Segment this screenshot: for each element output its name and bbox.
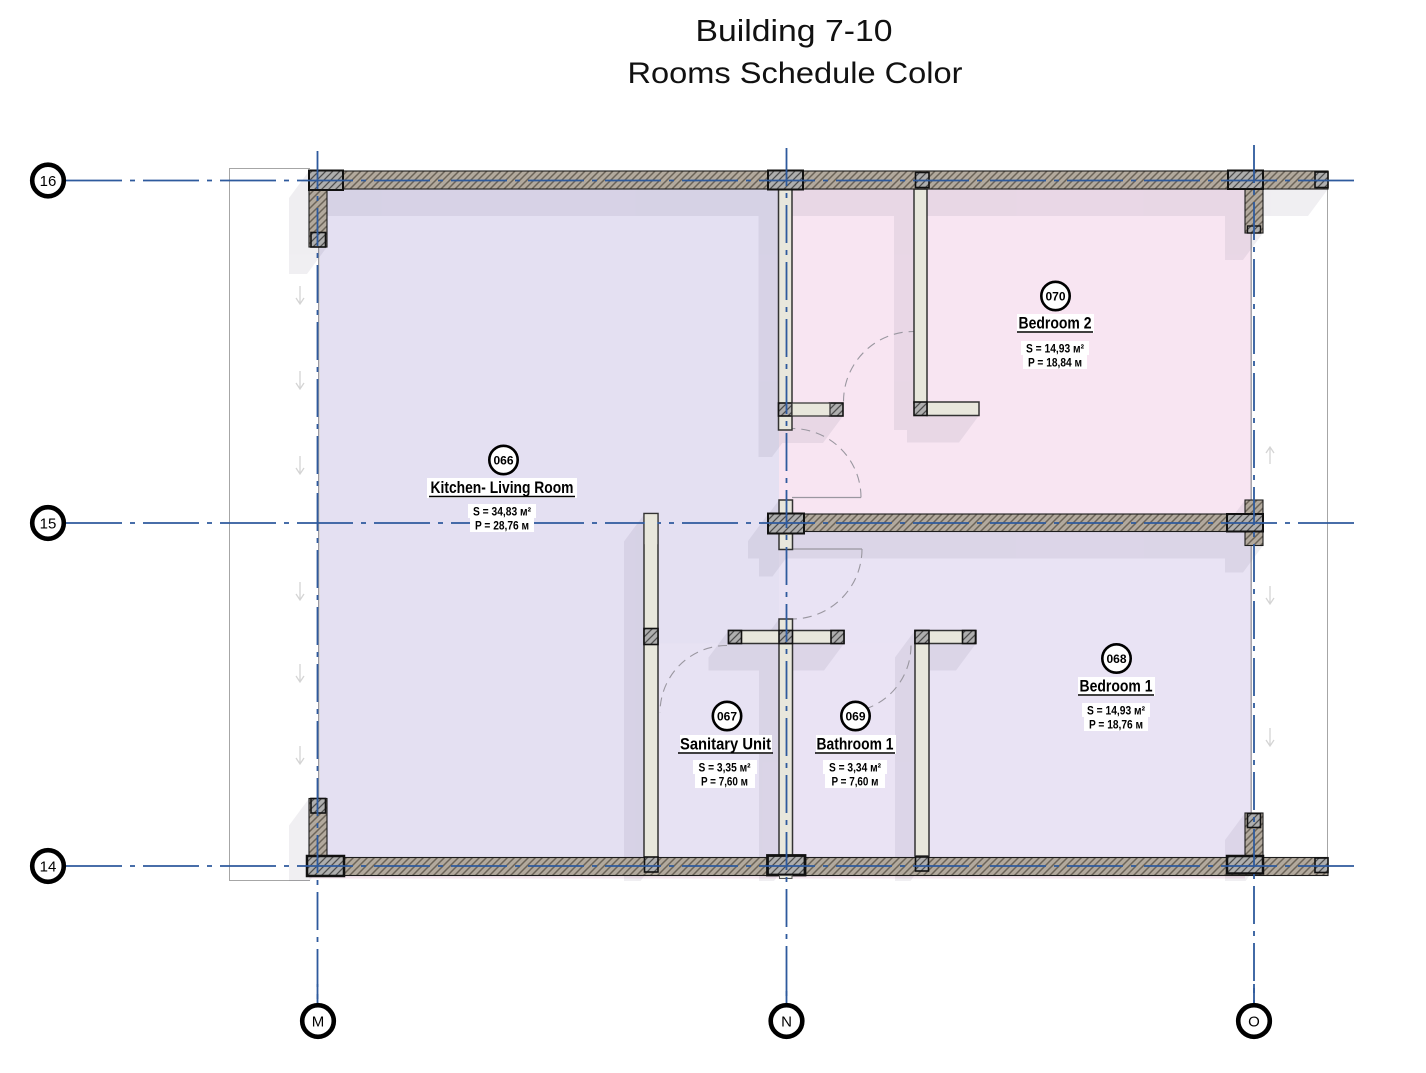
svg-text:N: N bbox=[781, 1014, 792, 1031]
svg-text:Building 7-10: Building 7-10 bbox=[696, 13, 893, 48]
svg-text:P = 18,76 м: P = 18,76 м bbox=[1089, 718, 1143, 732]
svg-text:070: 070 bbox=[1045, 290, 1065, 304]
svg-text:Bathroom 1: Bathroom 1 bbox=[817, 735, 894, 754]
svg-text:P = 7,60 м: P = 7,60 м bbox=[832, 775, 879, 789]
svg-text:Rooms Schedule Color: Rooms Schedule Color bbox=[628, 57, 963, 90]
svg-text:P = 28,76 м: P = 28,76 м bbox=[475, 519, 529, 533]
svg-text:Sanitary Unit: Sanitary Unit bbox=[680, 735, 771, 754]
svg-text:O: O bbox=[1248, 1014, 1260, 1031]
svg-text:14: 14 bbox=[40, 859, 57, 876]
svg-text:068: 068 bbox=[1106, 652, 1126, 666]
svg-text:067: 067 bbox=[717, 710, 737, 724]
svg-text:P = 7,60 м: P = 7,60 м bbox=[701, 775, 748, 789]
svg-text:Bedroom 1: Bedroom 1 bbox=[1080, 677, 1153, 696]
svg-text:069: 069 bbox=[845, 710, 865, 724]
svg-text:M: M bbox=[312, 1014, 325, 1031]
svg-text:S = 14,93 м²: S = 14,93 м² bbox=[1087, 704, 1145, 718]
svg-text:Kitchen- Living Room: Kitchen- Living Room bbox=[431, 478, 574, 497]
svg-text:16: 16 bbox=[40, 173, 57, 190]
svg-text:P = 18,84 м: P = 18,84 м bbox=[1028, 356, 1082, 370]
svg-text:066: 066 bbox=[493, 454, 513, 468]
svg-text:S = 3,34 м²: S = 3,34 м² bbox=[829, 761, 881, 775]
svg-text:15: 15 bbox=[40, 516, 57, 533]
svg-text:S = 3,35 м²: S = 3,35 м² bbox=[699, 761, 751, 775]
svg-text:Bedroom 2: Bedroom 2 bbox=[1019, 314, 1092, 333]
svg-text:S = 34,83 м²: S = 34,83 м² bbox=[473, 505, 531, 519]
svg-text:S = 14,93 м²: S = 14,93 м² bbox=[1026, 342, 1084, 356]
